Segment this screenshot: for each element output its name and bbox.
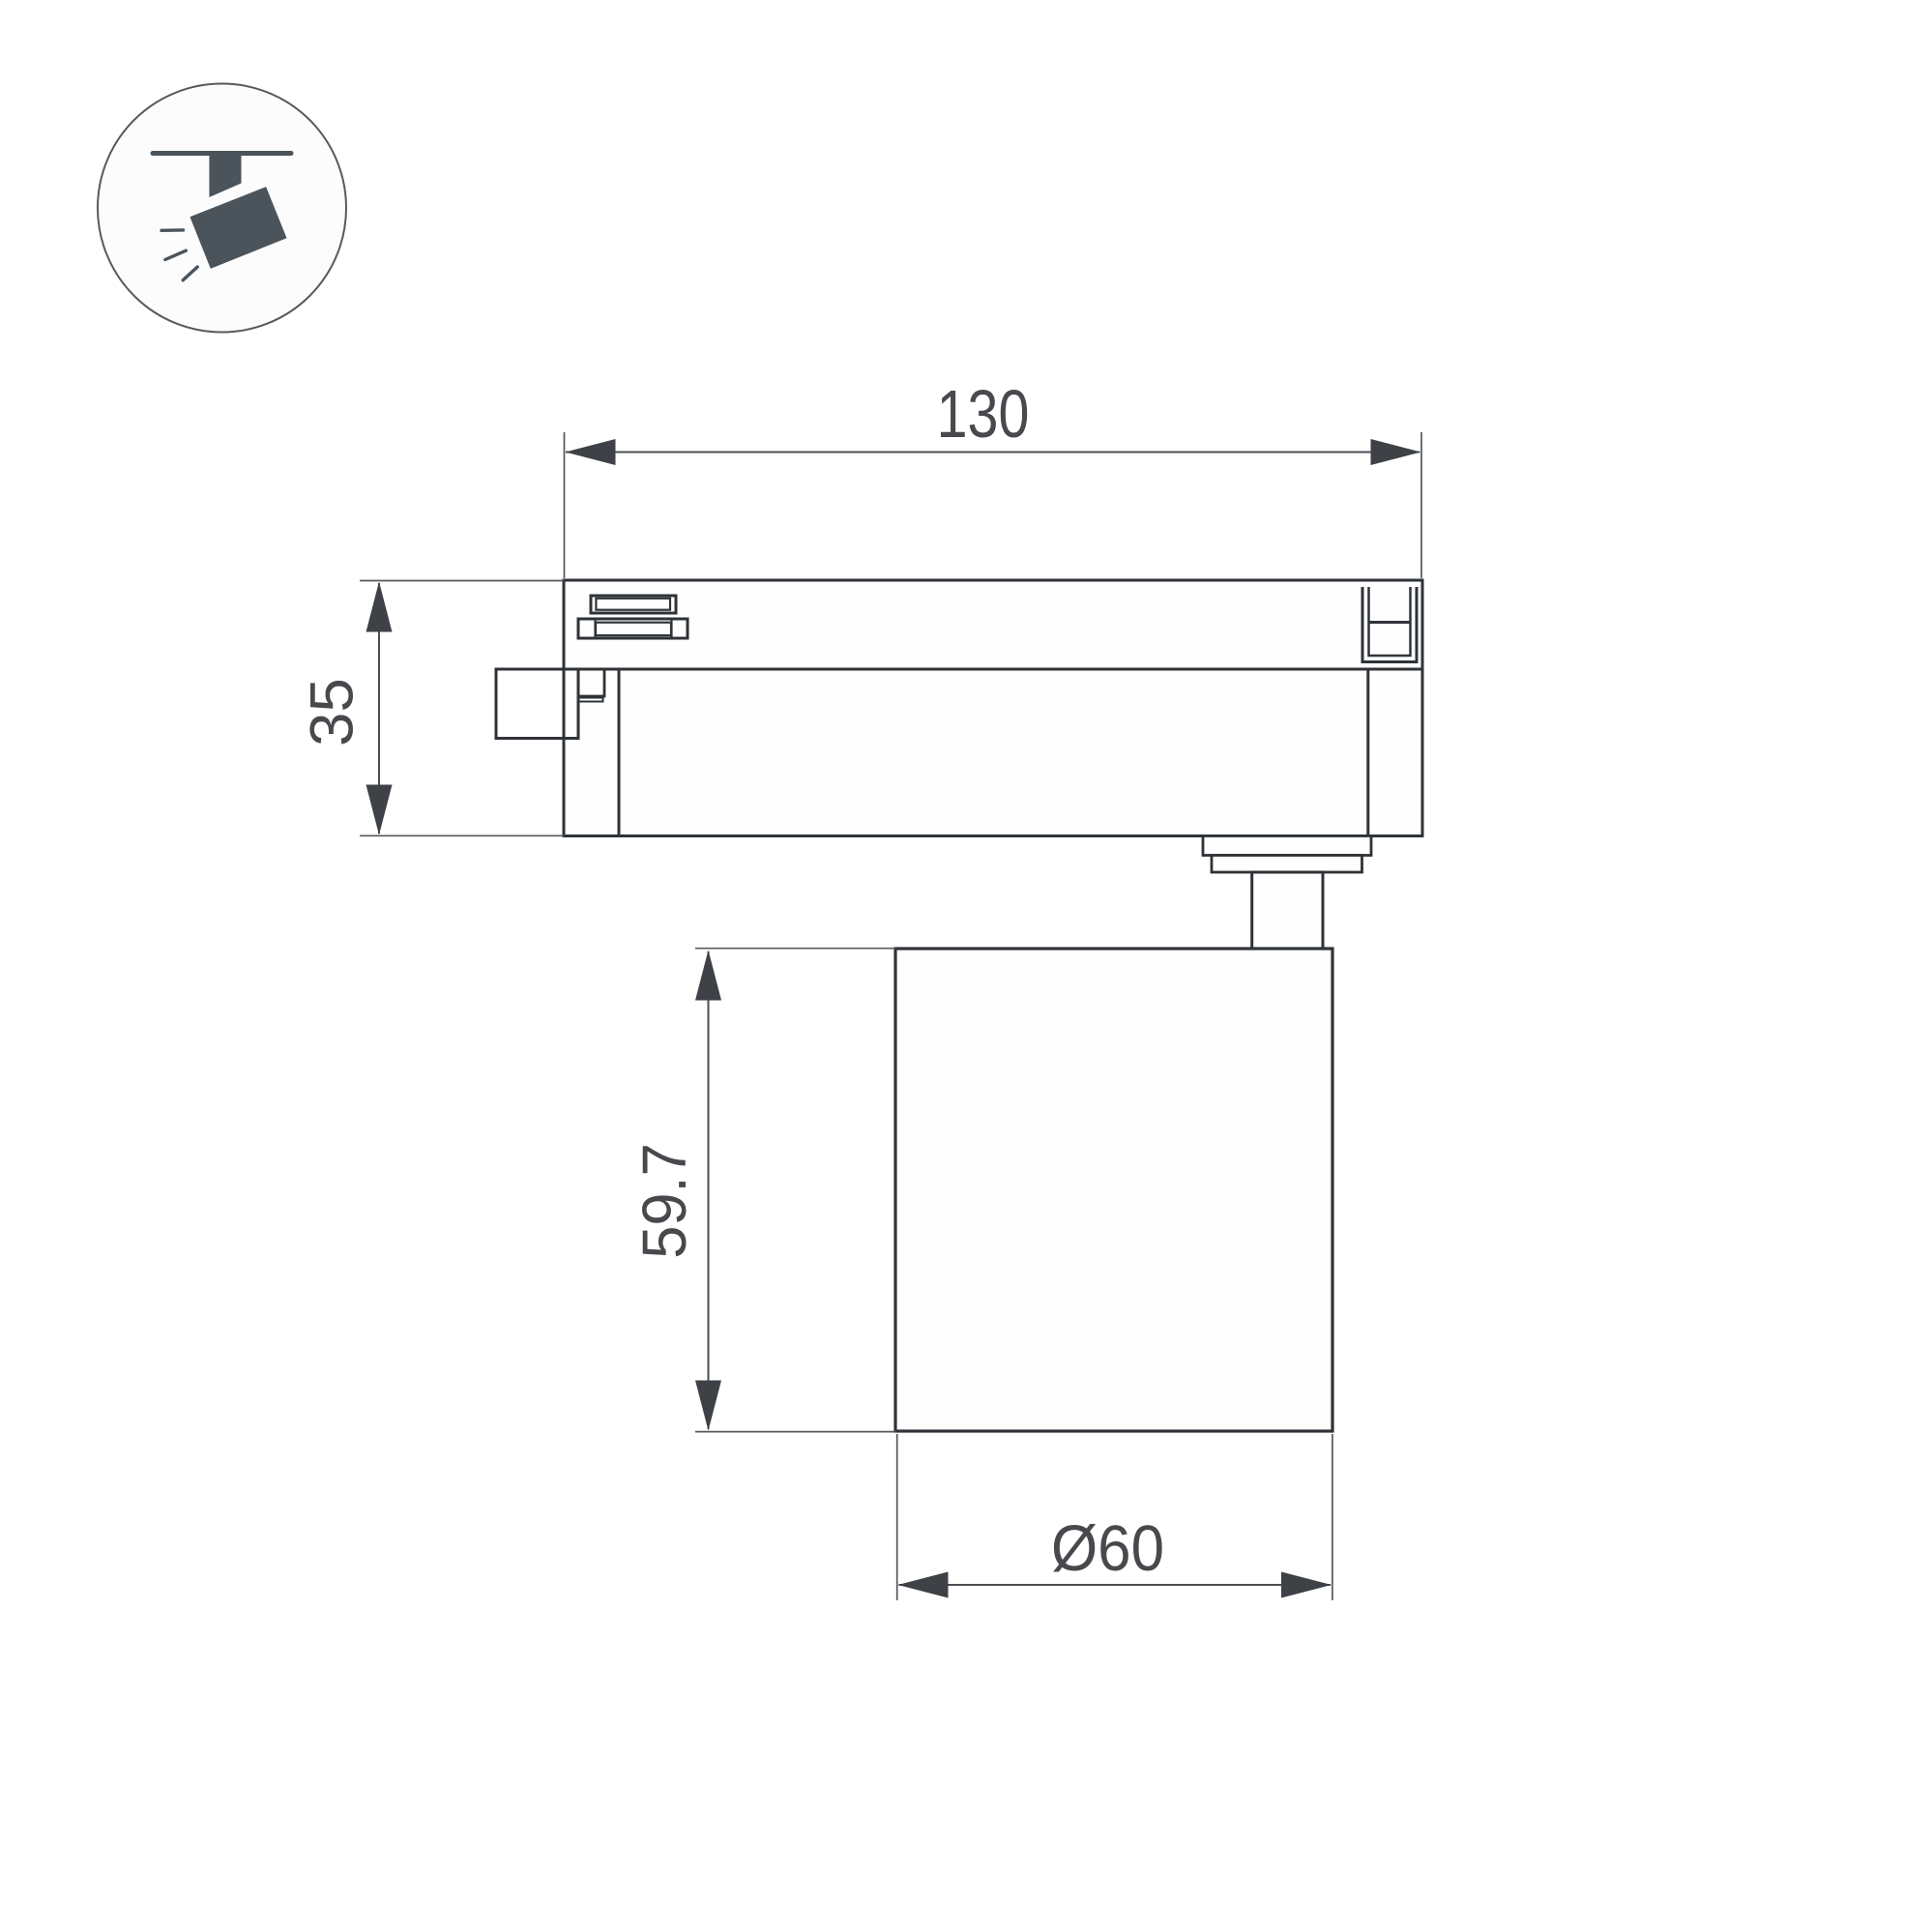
- svg-text:35: 35: [299, 678, 366, 746]
- svg-text:Ø60: Ø60: [1051, 1512, 1164, 1585]
- svg-text:130: 130: [937, 376, 1030, 453]
- svg-text:59.7: 59.7: [630, 1143, 699, 1259]
